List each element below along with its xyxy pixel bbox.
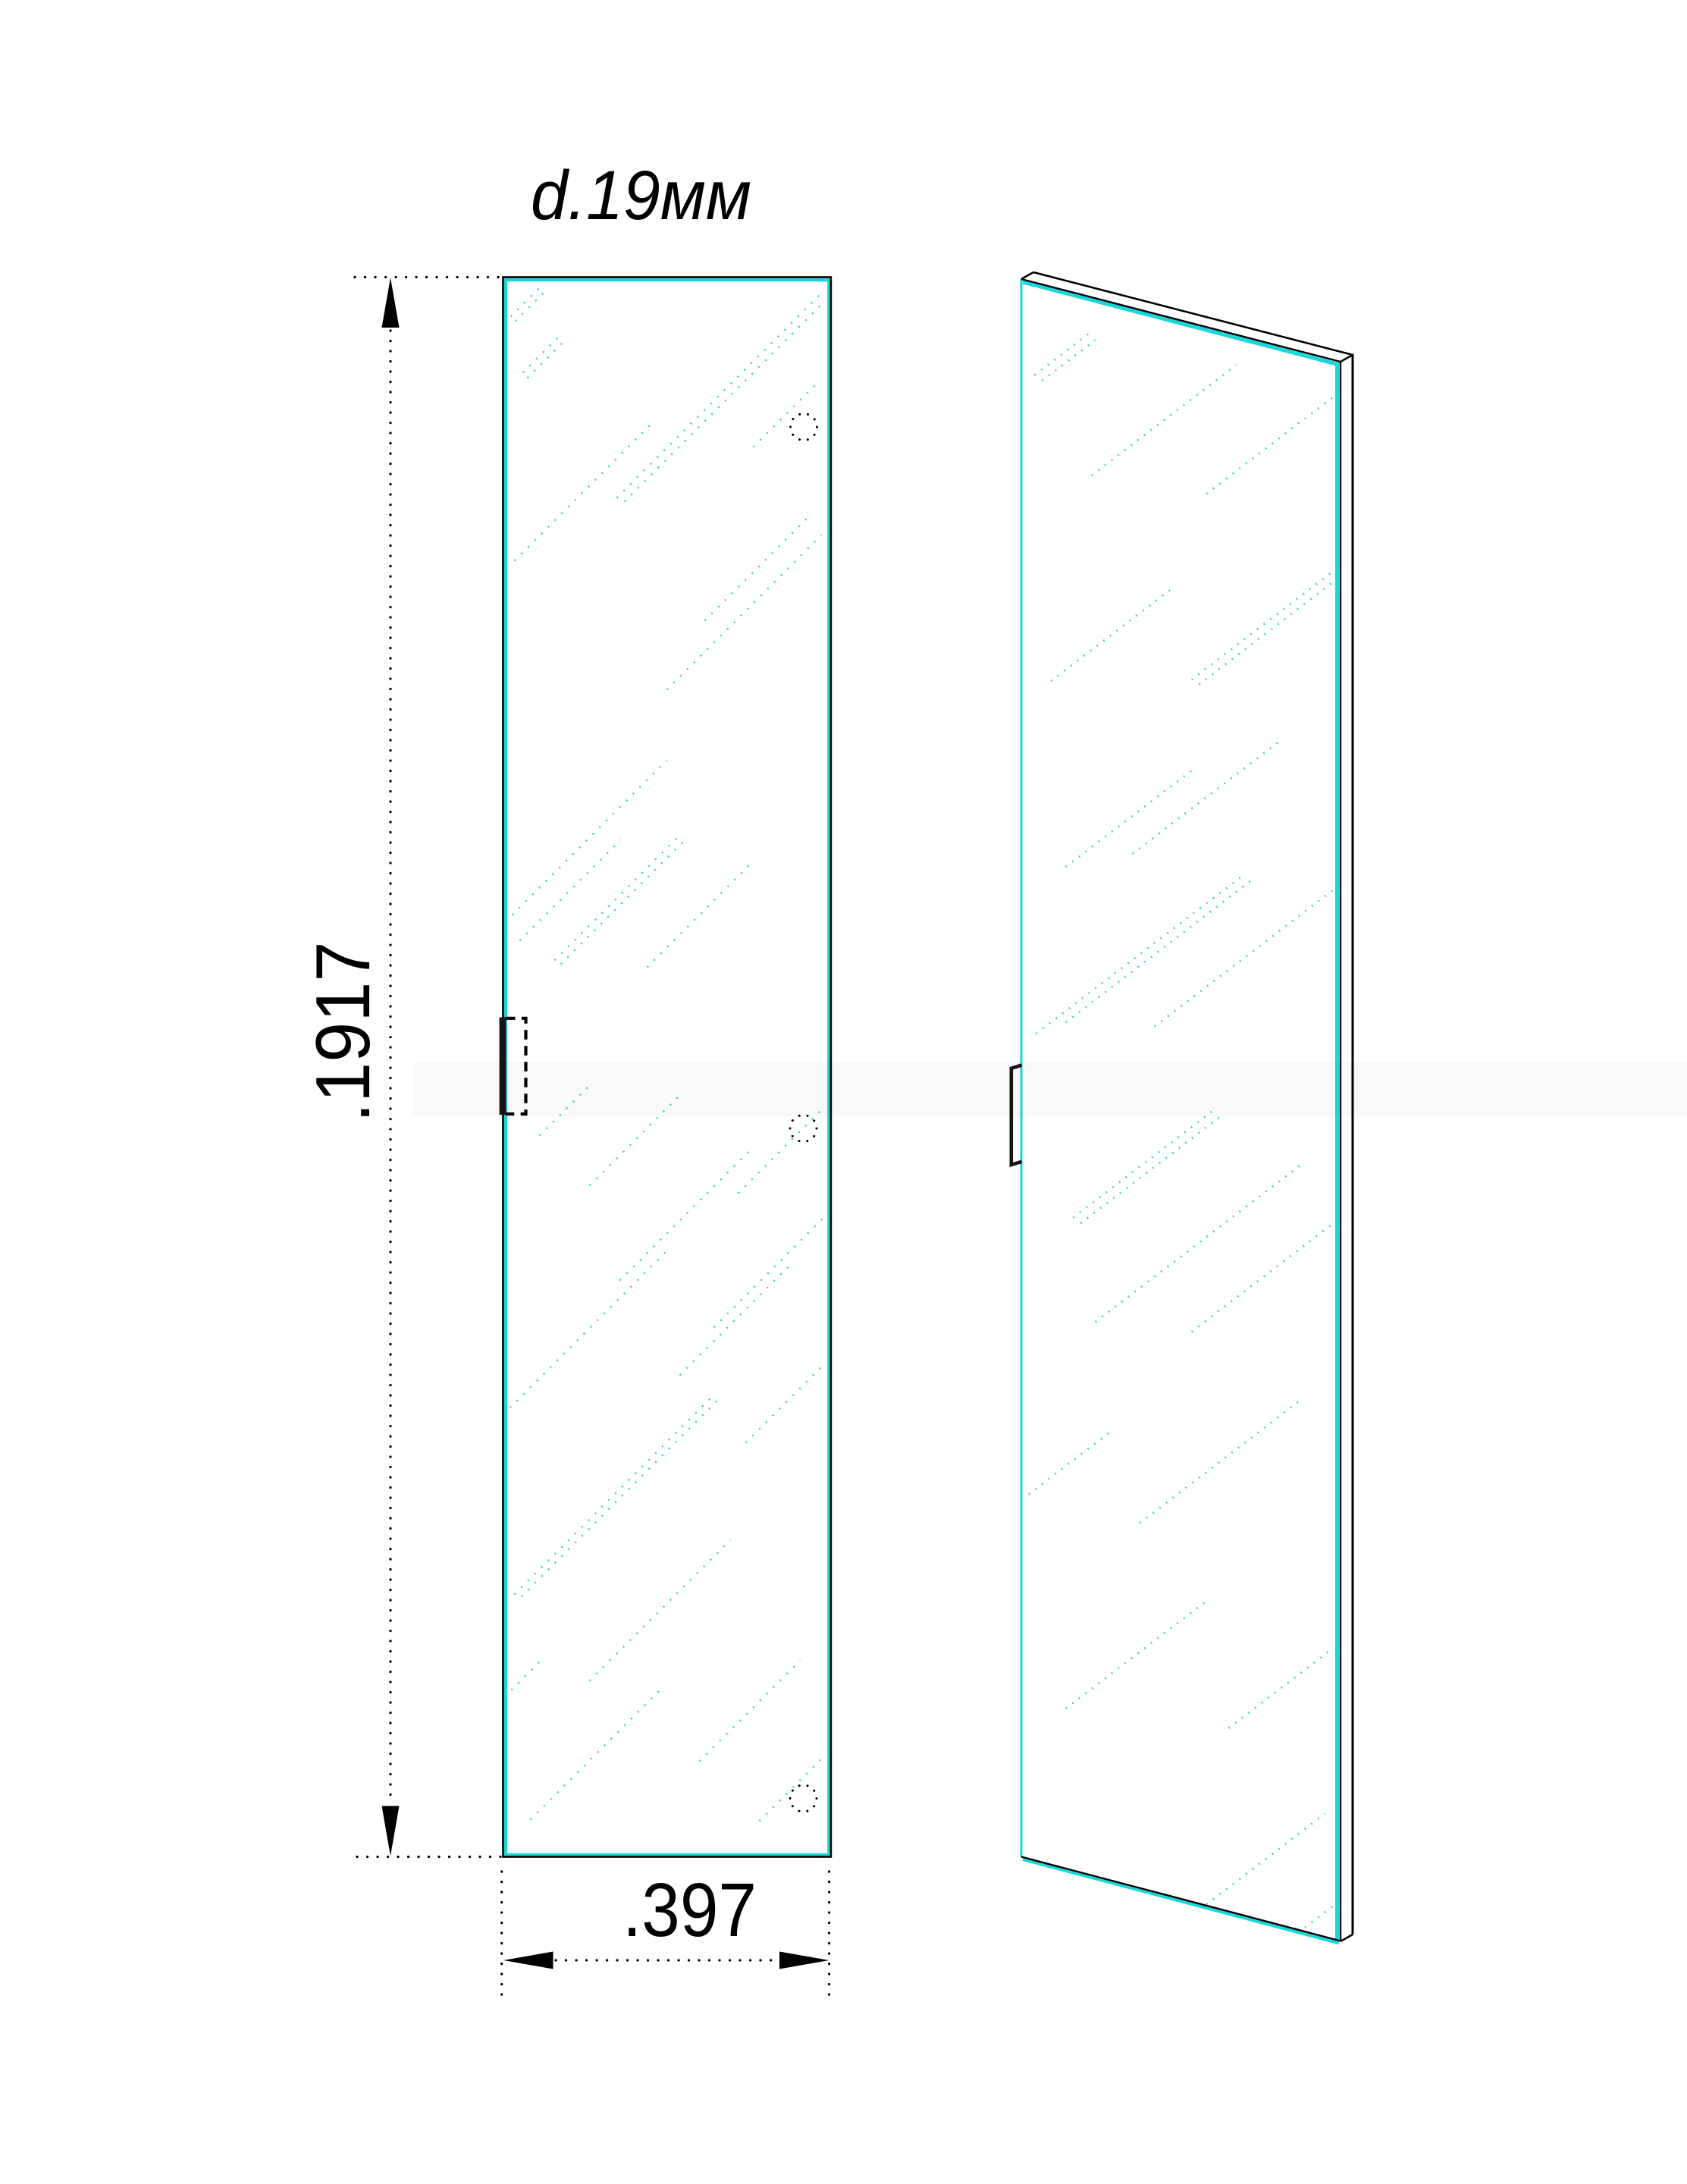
svg-text:.1917: .1917 bbox=[301, 942, 386, 1123]
svg-text:.397: .397 bbox=[622, 1868, 757, 1953]
svg-text:d.19мм: d.19мм bbox=[531, 157, 751, 234]
